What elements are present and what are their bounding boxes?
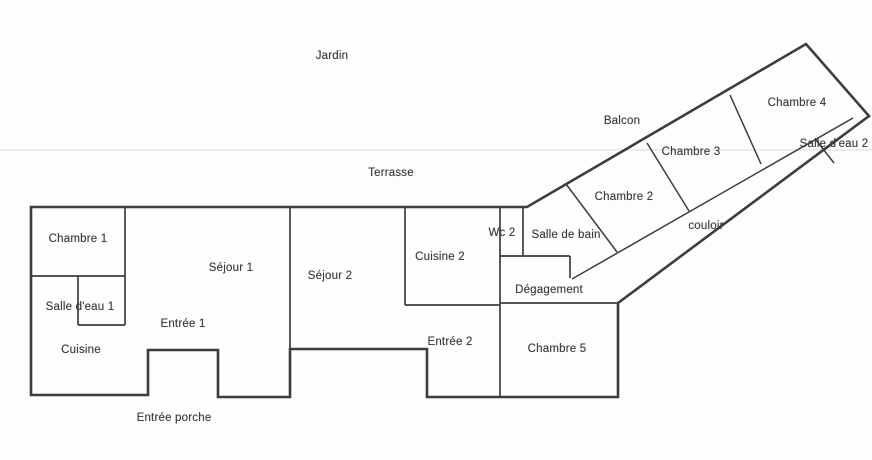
- label-sejour-1: Séjour 1: [209, 262, 253, 274]
- floor-plan: Jardin Terrasse Balcon Entrée porche Cha…: [0, 0, 872, 460]
- label-chambre-3: Chambre 3: [662, 146, 721, 158]
- label-salle-deau-1: Salle d'eau 1: [46, 301, 115, 313]
- label-salle-de-bain: Salle de bain: [531, 229, 600, 241]
- label-cuisine: Cuisine: [61, 344, 101, 356]
- label-sejour-2: Séjour 2: [308, 270, 352, 282]
- label-chambre-5: Chambre 5: [528, 343, 587, 355]
- label-degagement: Dégagement: [515, 284, 583, 296]
- label-terrasse: Terrasse: [368, 167, 414, 179]
- label-balcon: Balcon: [604, 115, 640, 127]
- label-salle-deau-2: Salle d'eau 2: [800, 138, 869, 150]
- label-couloir: couloir: [688, 220, 723, 232]
- label-cuisine-2: Cuisine 2: [415, 251, 465, 263]
- label-entree-1: Entrée 1: [160, 318, 205, 330]
- label-jardin: Jardin: [316, 50, 349, 62]
- label-chambre-1: Chambre 1: [49, 233, 108, 245]
- label-entree-porche: Entrée porche: [137, 412, 212, 424]
- label-chambre-4: Chambre 4: [768, 97, 827, 109]
- label-entree-2: Entrée 2: [427, 336, 472, 348]
- label-wc-2: Wc 2: [489, 227, 516, 239]
- floor-plan-walls: [0, 0, 872, 460]
- interior-walls-left-block: [31, 207, 618, 397]
- label-chambre-2: Chambre 2: [595, 191, 654, 203]
